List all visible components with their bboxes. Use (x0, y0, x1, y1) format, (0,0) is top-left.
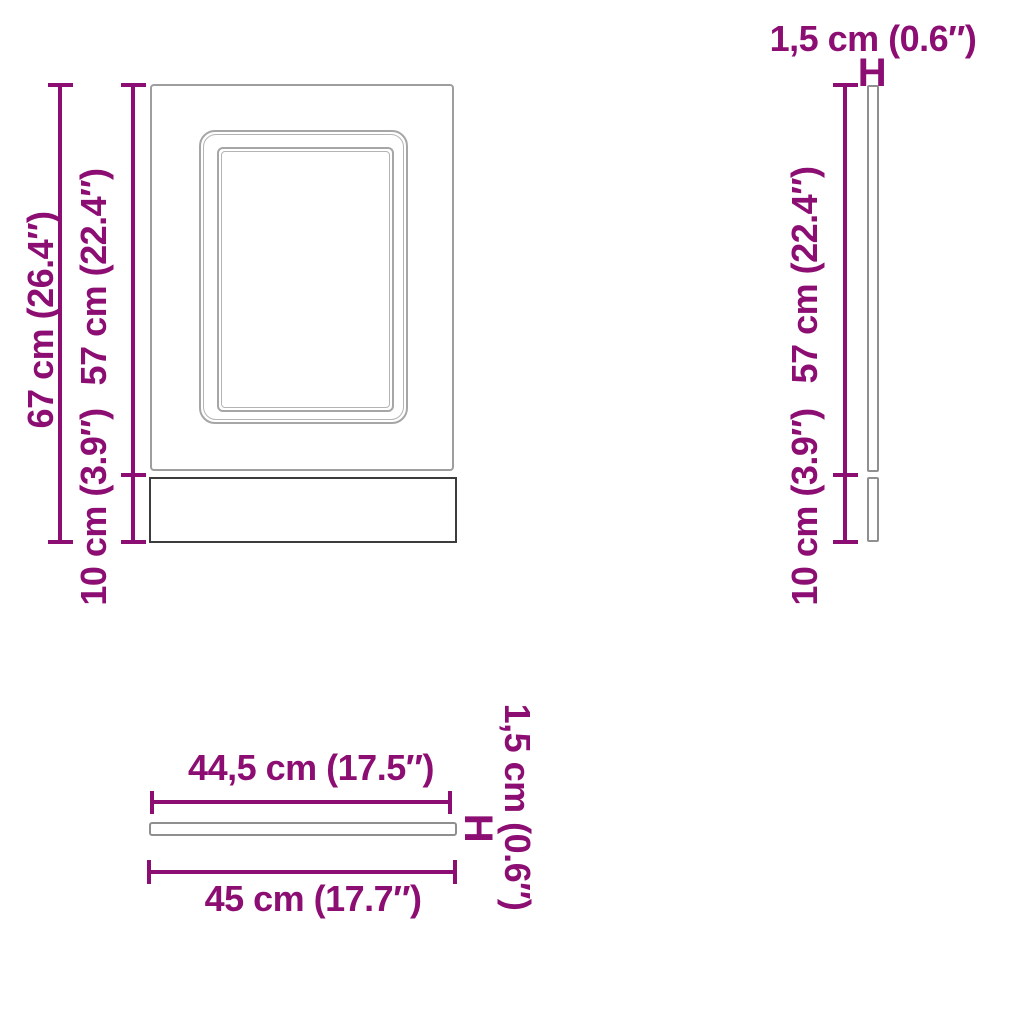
dim-line-total-width (149, 870, 455, 874)
bottom-thickness-marker: H (458, 814, 498, 842)
dim-tick-door-height-top (121, 83, 146, 87)
label-front-door-height: 57 cm (22.4″) (76, 169, 112, 386)
dim-tick-total-width-right (453, 860, 457, 884)
dim-line-panel-width (152, 800, 450, 804)
dim-tick-total-width-left (147, 860, 151, 884)
dim-tick-panel-width-right (448, 791, 452, 814)
label-total-width: 45 cm (17.7″) (205, 881, 422, 917)
dim-tick-side-mid (833, 473, 858, 477)
dim-tick-total-height-top (48, 83, 73, 87)
front-plinth-outline (149, 477, 457, 543)
dim-tick-door-height-mid (121, 473, 146, 477)
front-door-outline (150, 84, 454, 471)
side-plinth-outline (867, 477, 879, 542)
dim-tick-side-top (833, 83, 858, 87)
side-door-outline (867, 85, 879, 472)
dimension-diagram: 67 cm (26.4″) 57 cm (22.4″) 10 cm (3.9″)… (0, 0, 1024, 1024)
label-bottom-thickness: 1,5 cm (0.6″) (499, 704, 535, 911)
door-center-panel-inner-line (221, 151, 390, 408)
dim-tick-door-height-bottom (121, 540, 146, 544)
dim-tick-side-bottom (833, 540, 858, 544)
dim-tick-total-height-bottom (48, 540, 73, 544)
label-panel-width: 44,5 cm (17.5″) (188, 750, 434, 786)
label-total-height: 67 cm (26.4″) (23, 212, 59, 429)
label-front-plinth-height: 10 cm (3.9″) (76, 408, 112, 605)
label-side-door-height: 57 cm (22.4″) (787, 167, 823, 384)
door-center-panel (217, 147, 394, 412)
label-side-plinth-height: 10 cm (3.9″) (787, 408, 823, 605)
dim-tick-panel-width-left (150, 791, 154, 814)
bottom-panel-outline (149, 822, 457, 836)
